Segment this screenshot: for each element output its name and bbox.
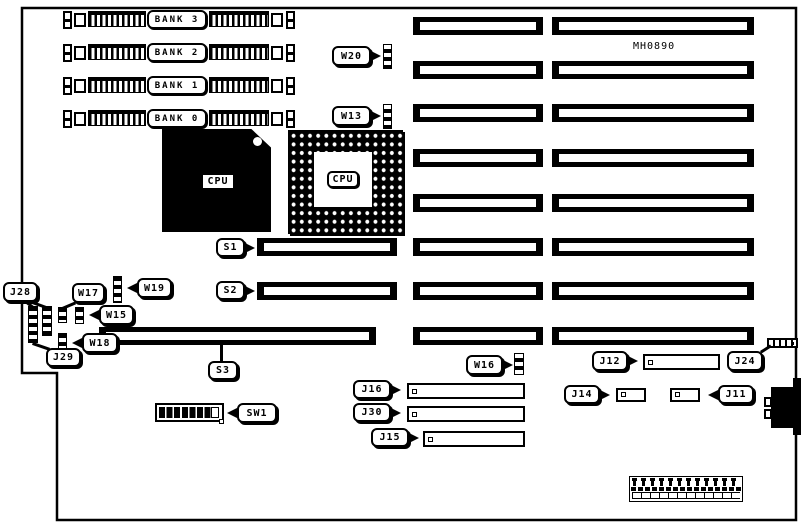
slot-opening [106, 332, 369, 340]
callout-pointer-icon [389, 384, 401, 396]
socket-s3 [99, 327, 376, 345]
label-w19: W19 [137, 278, 172, 298]
simm-pins-icon [88, 77, 146, 93]
label-w13-text: W13 [341, 111, 362, 122]
simm-socket-bank2: BANK 2 [63, 44, 295, 62]
expansion-slot [413, 149, 543, 167]
expansion-slot [552, 104, 754, 122]
pin1-marker-icon [412, 412, 417, 417]
label-j29: J29 [46, 348, 81, 367]
slot-opening [559, 154, 747, 162]
slot-opening [559, 287, 747, 295]
slot-opening [420, 243, 536, 251]
slot-opening [559, 109, 747, 117]
label-w20-text: W20 [341, 51, 362, 62]
expansion-slot [413, 327, 543, 345]
pin1-marker-icon [621, 392, 626, 397]
cpu-chip: CPU [162, 129, 271, 232]
expansion-slot [552, 194, 754, 212]
motherboard-diagram: MH0890 BANK 3 BANK 2 BANK 1 BANK 0 [0, 0, 807, 528]
label-j15: J15 [371, 428, 409, 447]
bank2-label: BANK 2 [147, 43, 207, 62]
callout-pointer-icon [389, 407, 401, 419]
simm-endcap-icon [286, 44, 295, 62]
label-w15-text: W15 [106, 310, 127, 321]
label-s3-text: S3 [216, 365, 230, 376]
label-s3: S3 [208, 361, 238, 380]
label-s2-text: S2 [223, 285, 237, 296]
simm-latch-icon [271, 79, 283, 93]
label-j14: J14 [564, 385, 600, 404]
label-j14-text: J14 [571, 389, 592, 400]
callout-pointer-icon [243, 285, 255, 297]
cpu-socket-label: CPU [327, 171, 358, 188]
slot-opening [420, 154, 536, 162]
pin-header-j30 [407, 406, 525, 422]
expansion-slot [413, 104, 543, 122]
label-j15-text: J15 [379, 432, 400, 443]
simm-pins-icon [209, 110, 269, 126]
simm-latch-icon [74, 112, 86, 126]
pin1-marker-icon [412, 389, 417, 394]
simm-socket-bank1: BANK 1 [63, 77, 295, 95]
label-w20: W20 [332, 46, 371, 66]
simm-latch-icon [74, 46, 86, 60]
pin-header-j16 [407, 383, 525, 399]
dip-switch-dot-icon [219, 419, 224, 424]
expansion-slot [413, 17, 543, 35]
jumper-w20-icon [383, 44, 392, 69]
pin-header-j14 [616, 388, 646, 402]
expansion-slot [552, 238, 754, 256]
label-w17: W17 [72, 283, 105, 303]
label-j29-text: J29 [53, 352, 74, 363]
pin1-marker-icon [428, 437, 433, 442]
label-w16-text: W16 [474, 360, 495, 371]
label-j30-text: J30 [361, 407, 382, 418]
callout-pointer-icon [243, 242, 255, 254]
simm-pins-icon [209, 44, 269, 60]
simm-pins-icon [88, 110, 146, 126]
keyboard-connector-pin-icon [764, 397, 772, 407]
label-s2: S2 [216, 281, 245, 300]
expansion-slot [413, 194, 543, 212]
callout-pointer-icon [89, 309, 101, 321]
jumper-w16-icon [514, 353, 524, 375]
power-connector-band-icon [631, 487, 741, 491]
dip-switch-bars-icon [159, 407, 211, 418]
bank0-label: BANK 0 [147, 109, 207, 128]
expansion-slot [413, 282, 543, 300]
simm-endcap-icon [63, 11, 72, 29]
slot-opening [420, 109, 536, 117]
edge-connector-j24 [767, 338, 798, 348]
header-j28-a-icon [28, 306, 38, 343]
callout-pointer-icon [501, 359, 513, 371]
label-w18: W18 [82, 333, 118, 353]
label-j28-text: J28 [10, 287, 31, 298]
bank1-label: BANK 1 [147, 76, 207, 95]
simm-latch-icon [74, 79, 86, 93]
expansion-slot [552, 61, 754, 79]
simm-endcap-icon [286, 77, 295, 95]
label-j16-text: J16 [361, 384, 382, 395]
slot-opening [264, 243, 390, 251]
connector-key-dot-icon [791, 342, 794, 345]
simm-latch-icon [74, 13, 86, 27]
label-j11: J11 [718, 385, 754, 404]
simm-pins-icon [209, 77, 269, 93]
slot-opening [264, 287, 390, 295]
slot-opening [420, 66, 536, 74]
simm-endcap-icon [286, 11, 295, 29]
simm-endcap-icon [63, 44, 72, 62]
callout-pointer-icon [407, 432, 419, 444]
label-sw1-text: SW1 [246, 408, 267, 419]
bank3-label-text: BANK 3 [155, 15, 200, 25]
pin1-marker-icon [675, 392, 680, 397]
part-number: MH0890 [633, 41, 675, 52]
label-w17-text: W17 [78, 288, 99, 299]
label-j12-text: J12 [599, 356, 620, 367]
simm-pins-icon [88, 44, 146, 60]
label-sw1: SW1 [237, 403, 277, 423]
pin-header-j11 [670, 388, 700, 402]
label-w19-text: W19 [144, 283, 165, 294]
callout-pointer-icon [369, 50, 381, 62]
callout-pointer-icon [227, 407, 239, 419]
callout-pointer-icon [626, 355, 638, 367]
slot-opening [420, 332, 536, 340]
header-j28-b-icon [42, 306, 52, 336]
power-pin-stems-icon [632, 481, 740, 486]
pin1-marker-icon [648, 360, 653, 365]
slot-opening [420, 287, 536, 295]
slot-opening [559, 243, 747, 251]
simm-socket-bank0: BANK 0 [63, 110, 295, 128]
keyboard-connector [771, 387, 796, 428]
keyboard-connector-pin-icon [764, 409, 772, 419]
jumper-w13-icon [383, 104, 392, 129]
simm-pins-icon [209, 11, 269, 27]
expansion-slot [552, 282, 754, 300]
slot-opening [559, 199, 747, 207]
dip-switch-open-position-icon [211, 407, 219, 418]
label-s1: S1 [216, 238, 245, 257]
bank3-label: BANK 3 [147, 10, 207, 29]
label-j11-text: J11 [725, 389, 746, 400]
cpu-socket-center: CPU [314, 152, 372, 207]
simm-latch-icon [271, 112, 283, 126]
label-j16: J16 [353, 380, 391, 399]
callout-pointer-icon [369, 110, 381, 122]
slot-opening [420, 22, 536, 30]
bank2-label-text: BANK 2 [155, 48, 200, 58]
slot-opening [559, 22, 747, 30]
label-j28: J28 [3, 282, 38, 302]
simm-latch-icon [271, 46, 283, 60]
callout-pointer-icon [598, 389, 610, 401]
bank0-label-text: BANK 0 [155, 114, 200, 124]
label-w15: W15 [99, 305, 134, 325]
expansion-slot [552, 149, 754, 167]
simm-endcap-icon [63, 110, 72, 128]
expansion-slot [413, 238, 543, 256]
jumper-w19-icon [113, 276, 122, 303]
pin-header-j12 [643, 354, 720, 370]
bank1-label-text: BANK 1 [155, 81, 200, 91]
cpu-socket: CPU [288, 130, 403, 234]
cpu-socket-label-text: CPU [332, 174, 353, 185]
pin1-dot-icon [253, 137, 262, 146]
label-w13: W13 [332, 106, 371, 126]
slot-opening [420, 199, 536, 207]
simm-latch-icon [271, 13, 283, 27]
cpu-chip-label-text: CPU [207, 176, 228, 187]
simm-endcap-icon [63, 77, 72, 95]
power-connector [629, 476, 743, 502]
label-j30: J30 [353, 403, 391, 422]
socket-s2 [257, 282, 397, 300]
label-s1-text: S1 [223, 242, 237, 253]
label-j12: J12 [592, 351, 628, 371]
power-connector-cells-icon [632, 492, 740, 499]
socket-s1 [257, 238, 397, 256]
label-w18-text: W18 [89, 338, 110, 349]
simm-endcap-icon [286, 110, 295, 128]
simm-pins-icon [88, 11, 146, 27]
callout-pointer-icon [708, 389, 720, 401]
cpu-chip-label: CPU [202, 174, 234, 189]
callout-pointer-icon [127, 282, 139, 294]
expansion-slot [552, 327, 754, 345]
expansion-slot [552, 17, 754, 35]
slot-opening [559, 332, 747, 340]
expansion-slot [413, 61, 543, 79]
callout-leader-line [220, 345, 223, 362]
label-j24: J24 [727, 351, 763, 371]
slot-opening [559, 66, 747, 74]
label-j24-text: J24 [734, 356, 755, 367]
simm-socket-bank3: BANK 3 [63, 11, 295, 29]
jumper-w15-icon [75, 307, 84, 324]
label-w16: W16 [466, 355, 503, 375]
pin-header-j15 [423, 431, 525, 447]
dip-switch-sw1 [155, 403, 224, 422]
